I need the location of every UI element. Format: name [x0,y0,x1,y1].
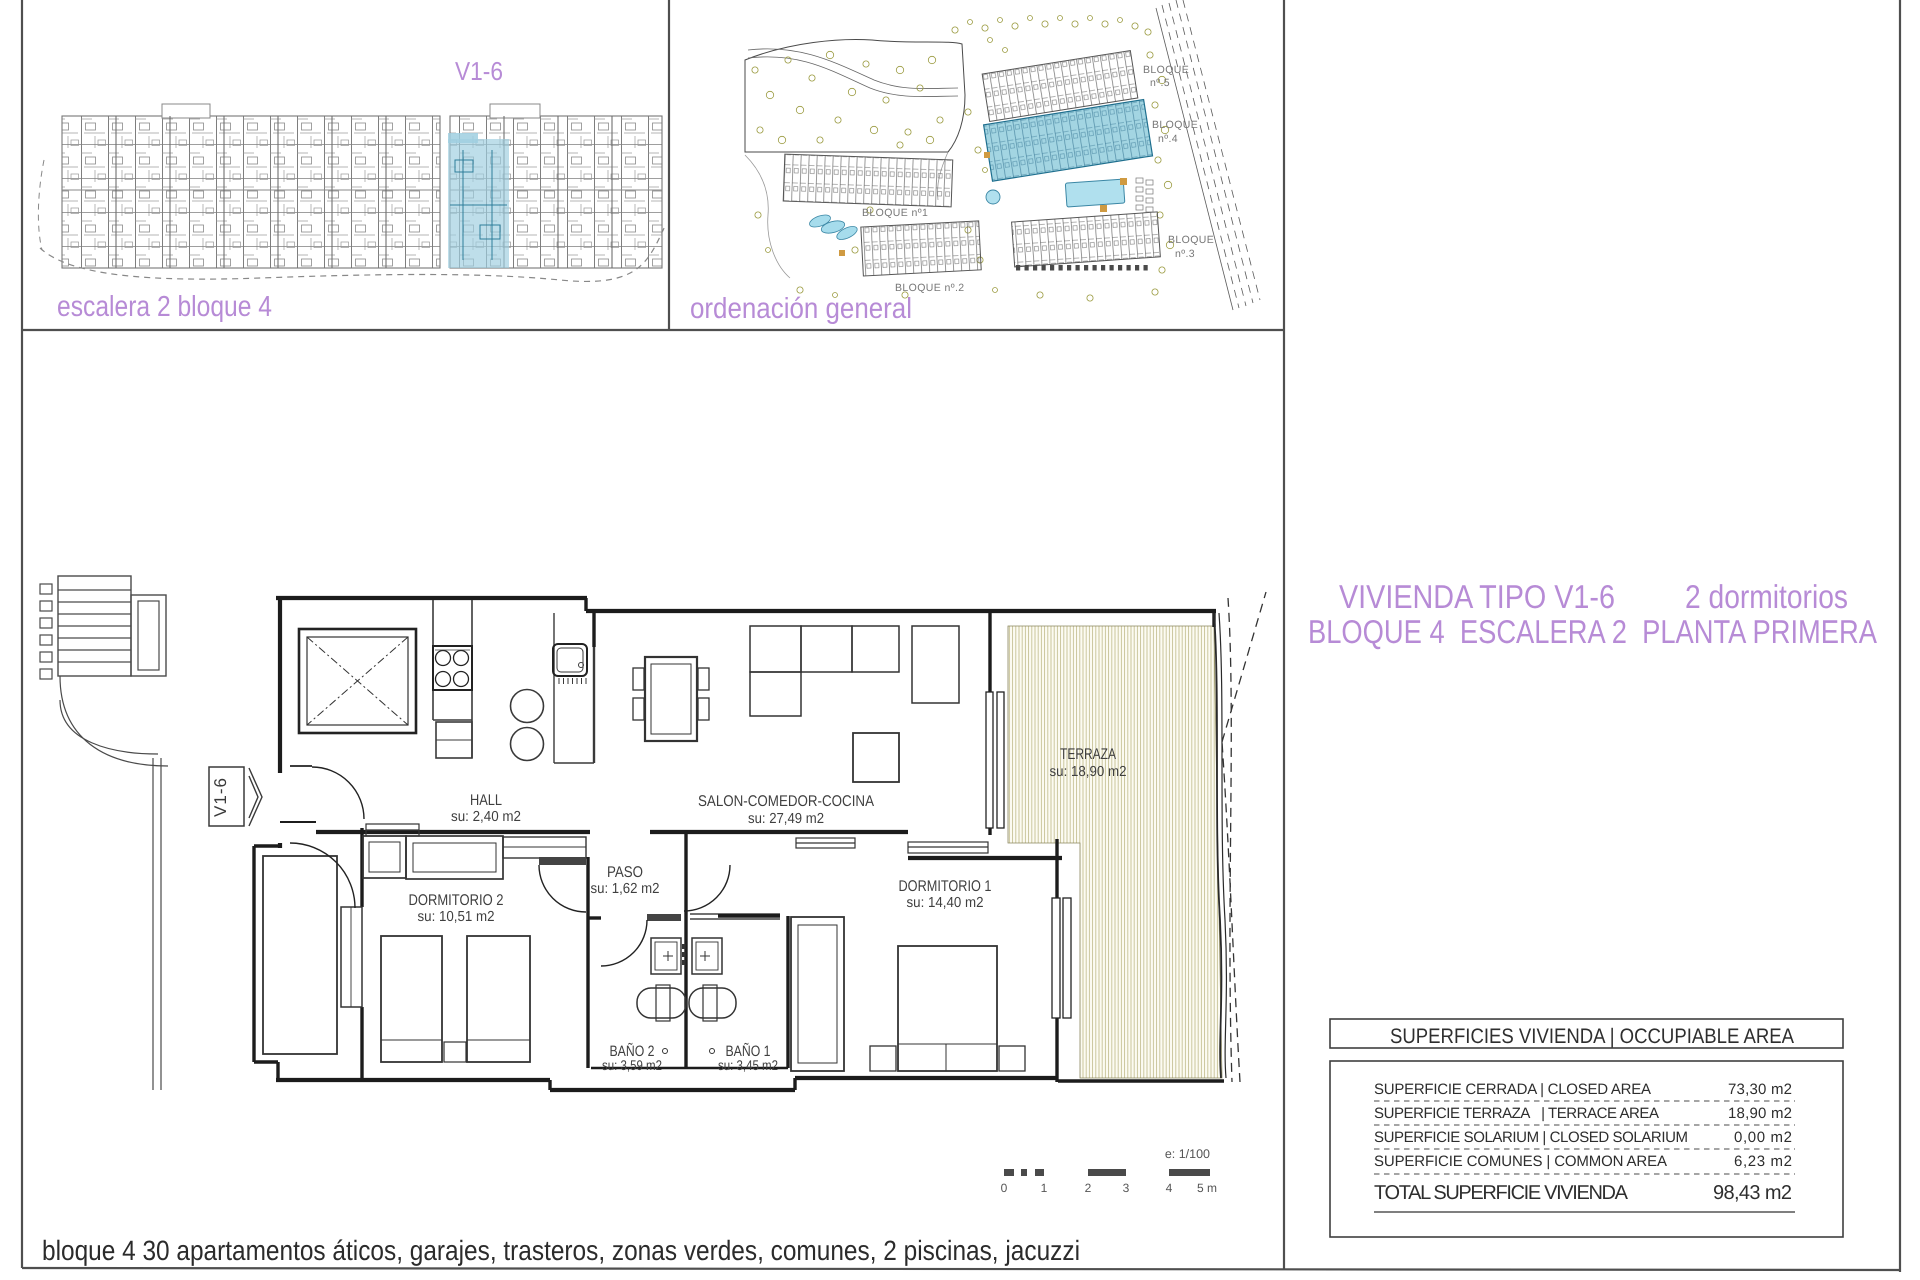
svg-text:3: 3 [1123,1181,1130,1195]
svg-text:SALON-COMEDOR-COCINA: SALON-COMEDOR-COCINA [698,793,875,810]
svg-text:su: 27,49 m2: su: 27,49 m2 [748,811,824,827]
svg-text:BLOQUE 4 ESCALERA 2 PLANTA P: BLOQUE 4 ESCALERA 2 PLANTA PRIMERA [1308,613,1877,650]
svg-text:2 dormitorios: 2 dormitorios [1685,578,1848,615]
svg-text:2: 2 [1085,1181,1092,1195]
svg-text:V1-6: V1-6 [211,777,230,817]
svg-text:ordenación general: ordenación general [690,293,912,325]
svg-text:su: 10,51 m2: su: 10,51 m2 [418,909,495,925]
svg-text:73,30 m2: 73,30 m2 [1728,1081,1792,1098]
svg-text:nº.4: nº.4 [1158,133,1178,145]
svg-text:98,43 m2: 98,43 m2 [1713,1182,1792,1204]
svg-text:escalera 2 bloque 4: escalera 2 bloque 4 [57,291,272,323]
svg-text:TOTAL SUPERFICIE VIVIENDA: TOTAL SUPERFICIE VIVIENDA [1374,1182,1629,1204]
svg-text:su: 1,62 m2: su: 1,62 m2 [591,881,660,897]
svg-text:PASO: PASO [607,864,643,881]
svg-text:bloque 4 30 apartamentos ático: bloque 4 30 apartamentos áticos, garajes… [42,1235,1080,1266]
svg-text:su: 3,59 m2: su: 3,59 m2 [602,1057,662,1073]
svg-text:SUPERFICIE SOLARIUM | CLOSED S: SUPERFICIE SOLARIUM | CLOSED SOLARIUM [1374,1129,1688,1146]
svg-text:1: 1 [1041,1181,1048,1195]
svg-text:SUPERFICIE CERRADA | CLOSED AR: SUPERFICIE CERRADA | CLOSED AREA [1374,1081,1651,1098]
svg-text:VIVIENDA TIPO V1-6: VIVIENDA TIPO V1-6 [1339,578,1615,615]
svg-text:nº.3: nº.3 [1175,248,1195,260]
svg-text:BLOQUE nº1: BLOQUE nº1 [862,207,928,219]
svg-text:SUPERFICIES VIVIENDA | OCCUPIA: SUPERFICIES VIVIENDA | OCCUPIABLE AREA [1390,1025,1794,1048]
svg-text:DORMITORIO 1: DORMITORIO 1 [899,878,992,895]
svg-text:BLOQUE nº.2: BLOQUE nº.2 [895,282,965,294]
svg-text:V1-6: V1-6 [455,56,503,86]
svg-text:0: 0 [1001,1181,1008,1195]
svg-text:HALL: HALL [470,792,502,809]
svg-text:SUPERFICIE COMUNES | COMMON AR: SUPERFICIE COMUNES | COMMON AREA [1374,1153,1667,1170]
svg-text:BLOQUE: BLOQUE [1143,64,1189,76]
svg-text:5 m: 5 m [1197,1181,1217,1195]
svg-text:BLOQUE: BLOQUE [1168,234,1214,246]
svg-text:e: 1/100: e: 1/100 [1165,1147,1210,1161]
svg-text:6,23 m2: 6,23 m2 [1734,1153,1792,1170]
svg-text:su: 2,40 m2: su: 2,40 m2 [451,809,521,825]
svg-text:BLOQUE: BLOQUE [1152,119,1198,131]
svg-text:4: 4 [1166,1181,1173,1195]
svg-text:TERRAZA: TERRAZA [1060,746,1117,763]
svg-text:SUPERFICIE TERRAZA | TERRACE: SUPERFICIE TERRAZA | TERRACE AREA [1374,1105,1659,1122]
svg-text:0,00 m2: 0,00 m2 [1734,1129,1792,1146]
svg-text:18,90 m2: 18,90 m2 [1728,1105,1792,1122]
svg-text:su: 14,40 m2: su: 14,40 m2 [907,895,984,911]
svg-text:nº.5: nº.5 [1150,77,1170,89]
svg-text:su: 18,90 m2: su: 18,90 m2 [1050,764,1127,780]
svg-text:DORMITORIO 2: DORMITORIO 2 [409,892,504,909]
svg-text:su: 3,45 m2: su: 3,45 m2 [718,1057,778,1073]
